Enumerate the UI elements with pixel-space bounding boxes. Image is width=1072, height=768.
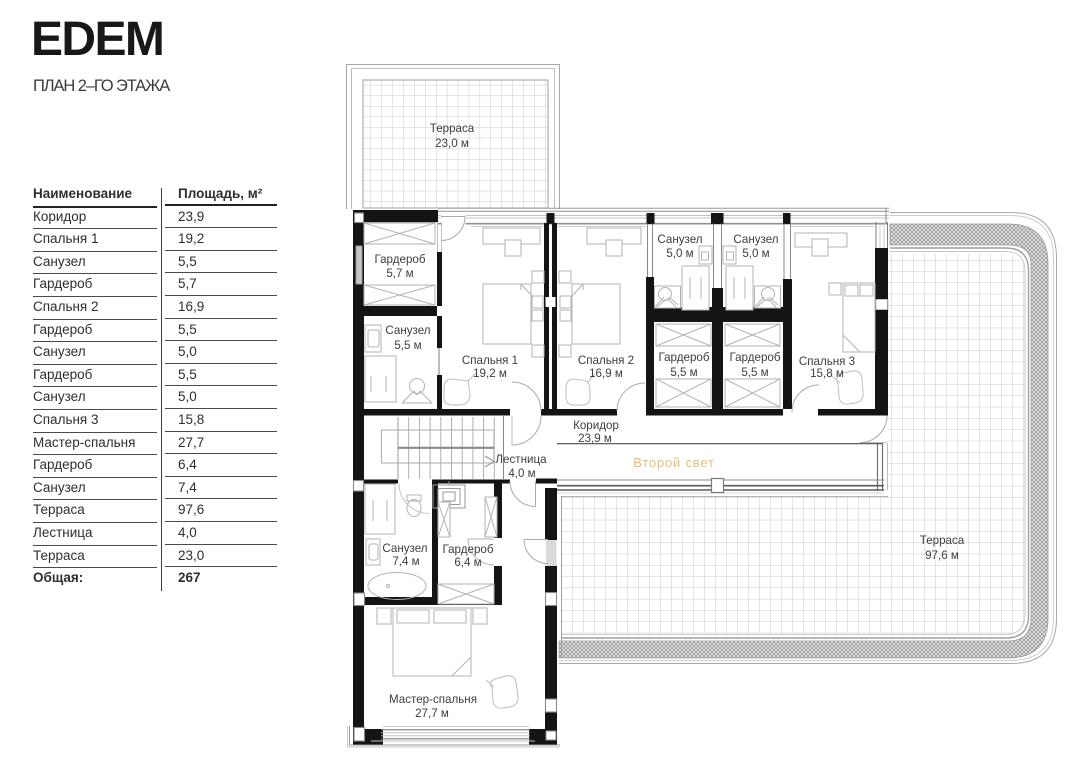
svg-text:6,4 м: 6,4 м: [454, 556, 481, 569]
svg-text:27,7 м: 27,7 м: [415, 707, 449, 720]
svg-text:Гардероб: Гардероб: [729, 351, 780, 364]
svg-text:Терраса: Терраса: [430, 122, 475, 135]
svg-text:Терраса: Терраса: [920, 534, 965, 547]
svg-text:97,6 м: 97,6 м: [925, 549, 959, 562]
svg-text:Спальня 2: Спальня 2: [578, 354, 634, 367]
svg-text:5,5 м: 5,5 м: [741, 366, 768, 379]
svg-text:Спальня 1: Спальня 1: [462, 354, 518, 367]
svg-text:19,2 м: 19,2 м: [473, 367, 507, 380]
svg-text:7,4 м: 7,4 м: [392, 555, 419, 568]
svg-text:15,8 м: 15,8 м: [810, 367, 844, 380]
svg-text:Коридор: Коридор: [573, 419, 619, 432]
svg-text:Лестница: Лестница: [495, 453, 547, 466]
svg-text:Санузел: Санузел: [657, 233, 702, 246]
svg-text:5,7 м: 5,7 м: [386, 267, 413, 280]
svg-text:5,0 м: 5,0 м: [742, 247, 769, 260]
svg-text:23,9 м: 23,9 м: [578, 432, 612, 445]
svg-text:5,5 м: 5,5 м: [394, 339, 421, 352]
svg-text:5,0 м: 5,0 м: [666, 247, 693, 260]
svg-text:Гардероб: Гардероб: [658, 351, 709, 364]
svg-text:Санузел: Санузел: [733, 233, 778, 246]
svg-text:16,9 м: 16,9 м: [589, 367, 623, 380]
svg-text:23,0 м: 23,0 м: [435, 137, 469, 150]
svg-text:Санузел: Санузел: [385, 324, 430, 337]
svg-text:Гардероб: Гардероб: [374, 253, 425, 266]
svg-text:Санузел: Санузел: [382, 542, 427, 555]
svg-text:4,0 м: 4,0 м: [508, 467, 535, 480]
svg-text:Второй свет: Второй свет: [633, 455, 714, 470]
svg-text:Гардероб: Гардероб: [442, 543, 493, 556]
svg-text:Мастер-спальня: Мастер-спальня: [389, 693, 477, 706]
svg-text:5,5 м: 5,5 м: [670, 366, 697, 379]
